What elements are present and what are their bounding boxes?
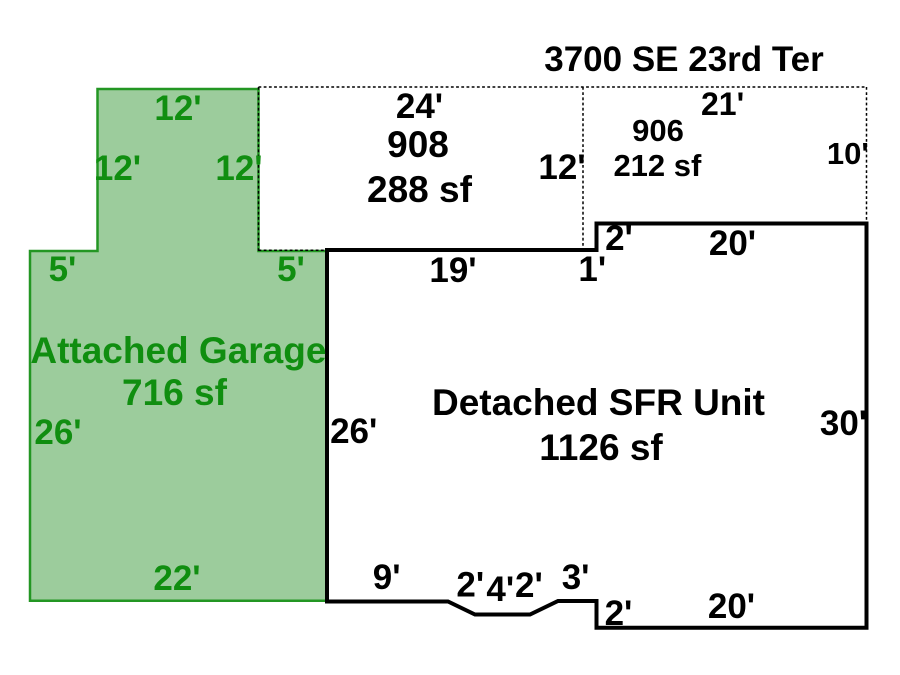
svg-text:12': 12' <box>94 149 141 188</box>
svg-text:24': 24' <box>396 87 443 126</box>
svg-text:716 sf: 716 sf <box>122 372 228 413</box>
svg-text:906: 906 <box>632 113 684 148</box>
svg-text:20': 20' <box>709 224 756 263</box>
svg-text:908: 908 <box>387 124 449 165</box>
svg-text:5': 5' <box>277 250 305 289</box>
svg-text:12': 12' <box>154 89 201 128</box>
svg-text:20': 20' <box>708 587 755 626</box>
svg-text:12': 12' <box>538 148 585 187</box>
svg-text:2': 2' <box>605 594 633 633</box>
svg-text:5': 5' <box>49 250 77 289</box>
svg-text:Detached SFR Unit: Detached SFR Unit <box>432 382 765 423</box>
svg-text:3': 3' <box>562 558 590 597</box>
svg-text:Attached Garage: Attached Garage <box>30 330 326 371</box>
svg-text:2': 2' <box>605 219 633 258</box>
svg-text:26': 26' <box>34 413 81 452</box>
svg-text:22': 22' <box>153 559 200 598</box>
svg-text:30': 30' <box>820 404 867 443</box>
svg-text:4': 4' <box>486 570 514 609</box>
svg-text:1126 sf: 1126 sf <box>539 427 663 468</box>
svg-text:212 sf: 212 sf <box>613 148 702 183</box>
svg-text:9': 9' <box>373 558 401 597</box>
svg-text:2': 2' <box>515 566 543 605</box>
svg-text:26': 26' <box>330 412 377 451</box>
svg-text:288 sf: 288 sf <box>367 169 473 210</box>
svg-text:1': 1' <box>578 250 606 289</box>
svg-text:12': 12' <box>215 149 262 188</box>
svg-text:2': 2' <box>456 566 484 605</box>
svg-text:3700 SE 23rd Ter: 3700 SE 23rd Ter <box>544 40 824 79</box>
svg-text:10': 10' <box>827 136 869 171</box>
svg-text:21': 21' <box>701 86 744 122</box>
svg-text:19': 19' <box>429 251 476 290</box>
